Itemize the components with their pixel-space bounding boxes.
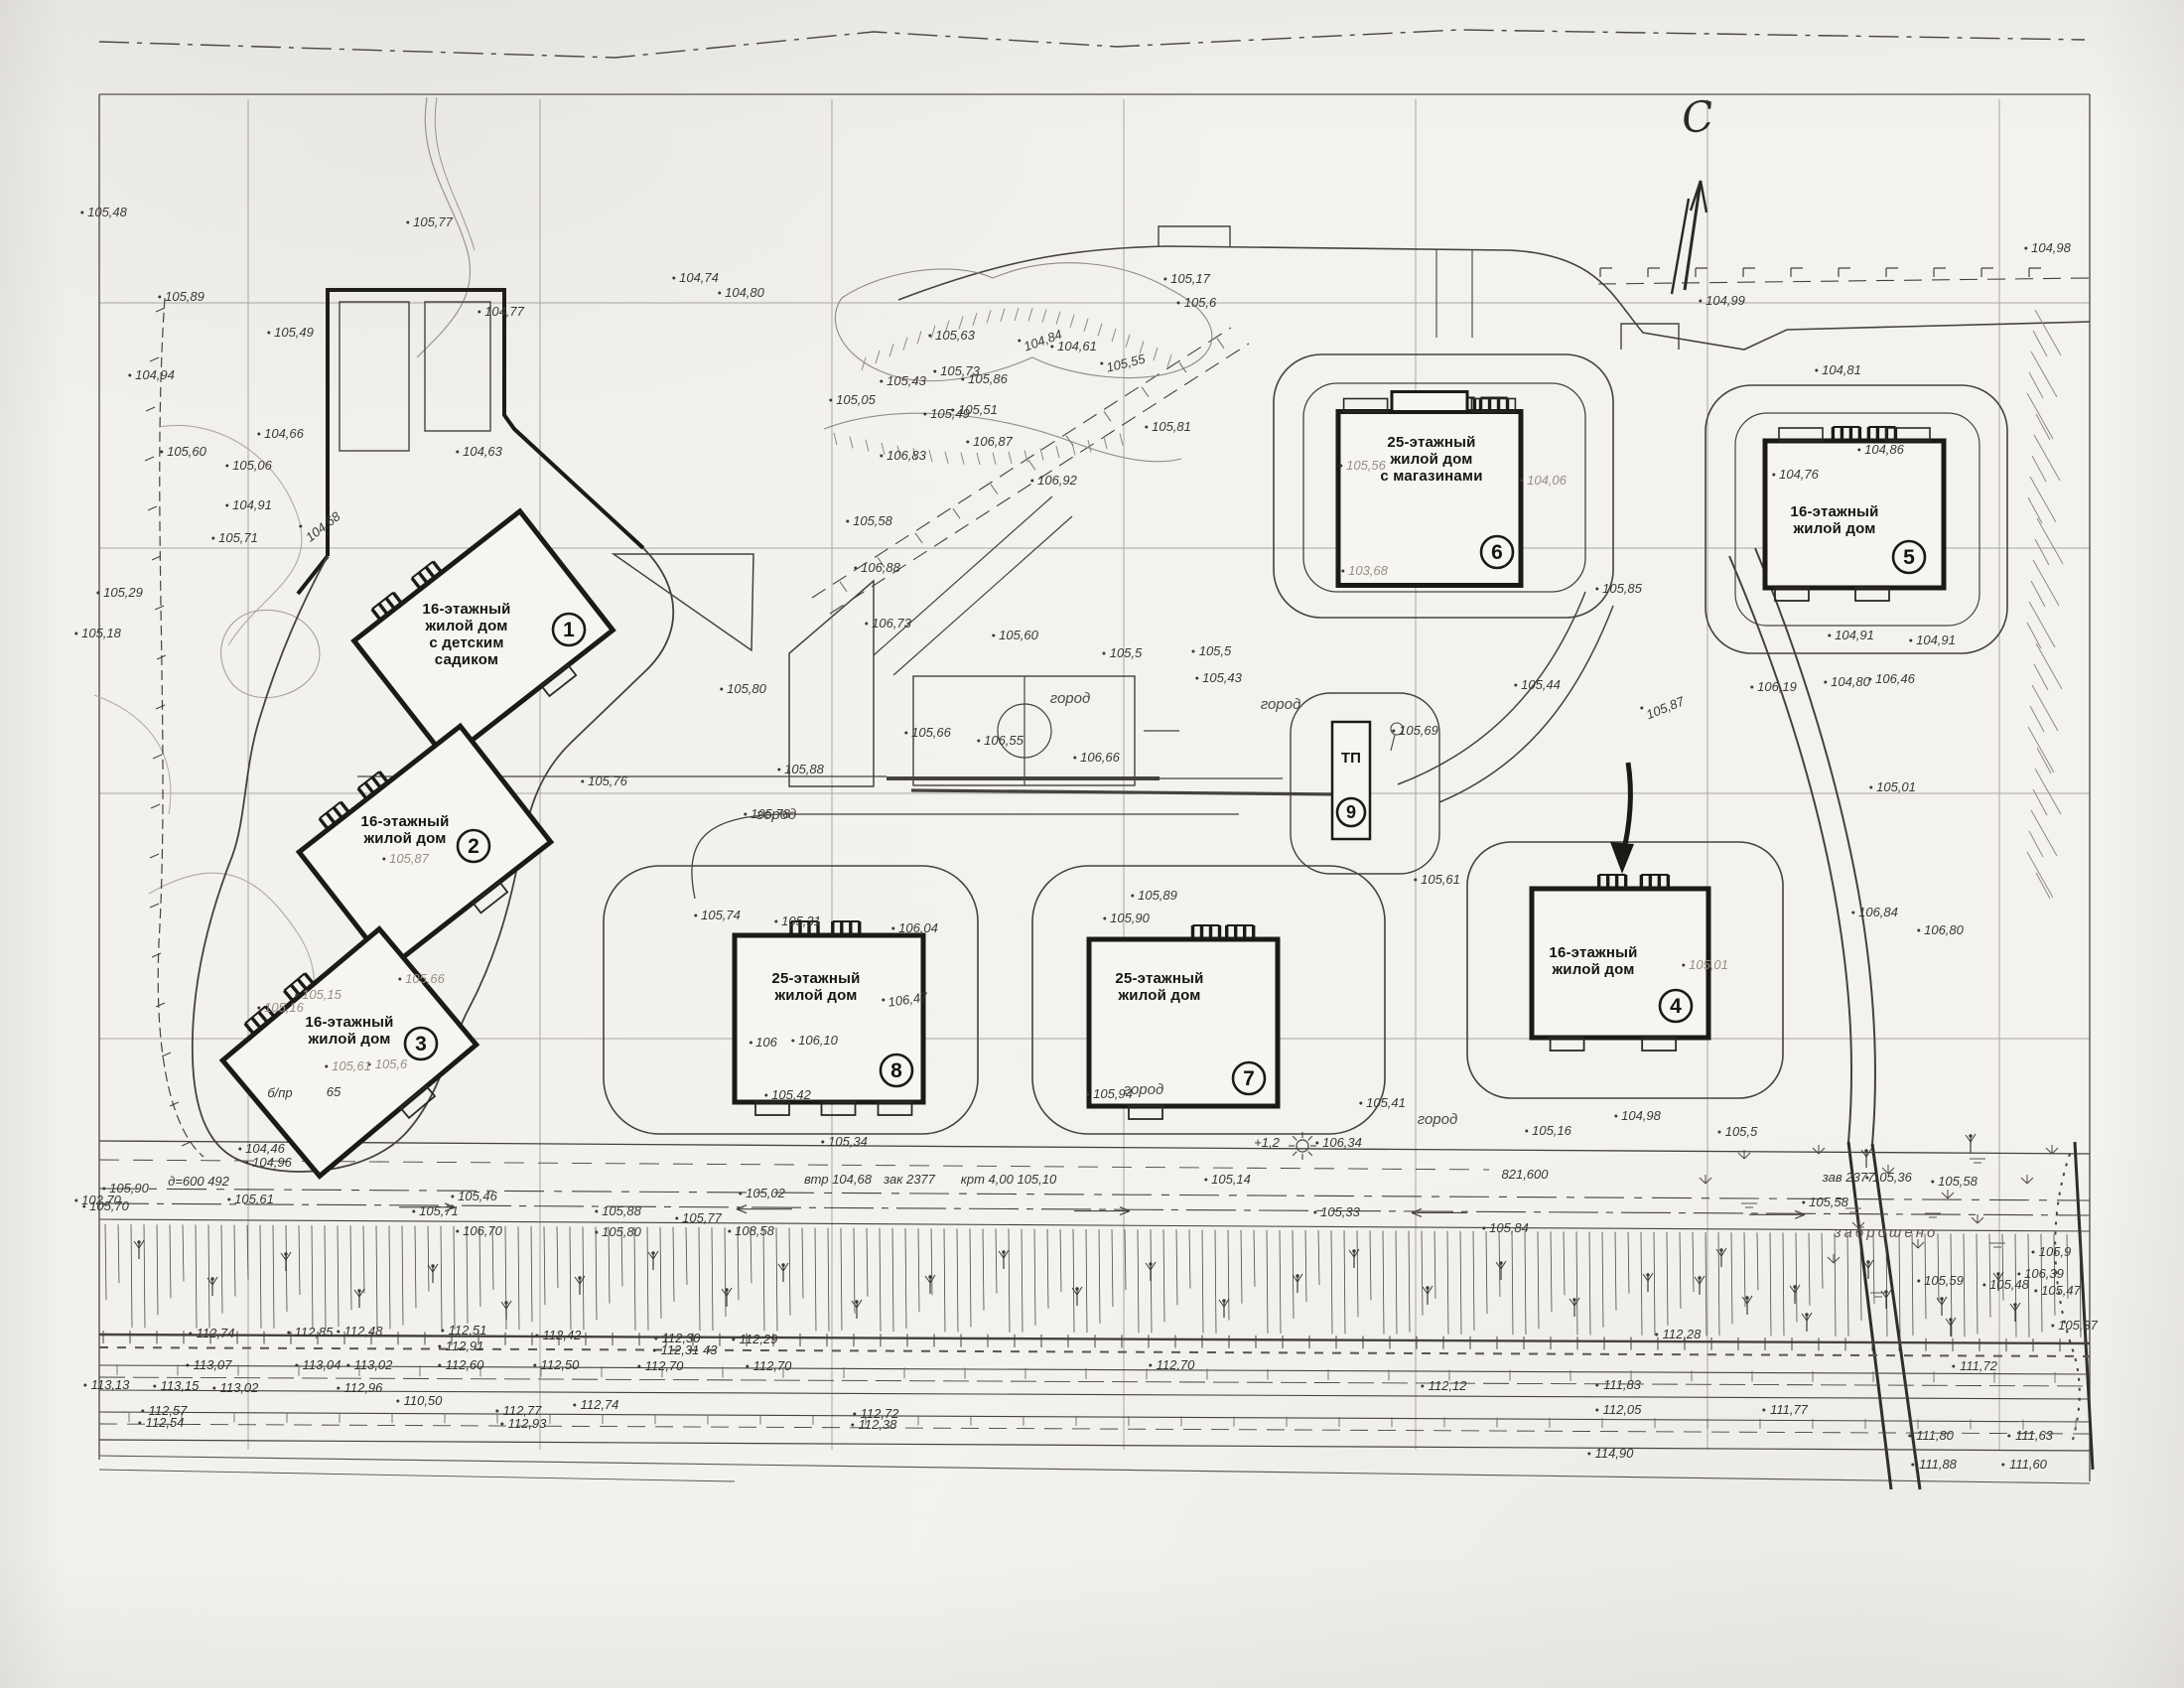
elevation-label: 105,46 [458, 1189, 498, 1203]
elevation-label: 105,61 [332, 1058, 371, 1073]
elevation-label: 104,63 [463, 444, 503, 459]
rail-elevation-label: 112,60 [446, 1357, 485, 1372]
elevation-label: 104,94 [135, 367, 175, 382]
rail-elevation-label: 112,38 [859, 1417, 898, 1432]
elevation-label: 106,83 [887, 448, 927, 463]
elevation-label: 105,55 [1105, 351, 1148, 374]
building-label-line: 16-этажный [360, 813, 449, 830]
elevation-label: 106,55 [984, 733, 1024, 748]
elevation-label: 105,6 [1184, 295, 1217, 310]
building-label-line: 16-этажный [1549, 944, 1637, 961]
elevation-label: 104,46 [245, 1141, 286, 1156]
elevation-label: 105,18 [81, 626, 122, 640]
elevation-label: 105,31 [781, 914, 821, 928]
elevation-label: 105,43 [887, 373, 927, 388]
building-label-line: с детским [429, 634, 503, 651]
rail-elevation-label: 112,70 [1157, 1357, 1196, 1372]
building-label-line: 25-этажный [771, 970, 860, 987]
elevation-label: 105,01 [1689, 957, 1728, 972]
elevation-label: 105,77 [413, 214, 454, 229]
building-label-line: 16-этажный [422, 601, 510, 618]
elevation-label: 106 [755, 1035, 777, 1050]
elevation-label: 105,80 [727, 681, 767, 696]
elevation-label: 105,48 [1989, 1277, 2030, 1292]
building-number: 7 [1243, 1067, 1255, 1090]
rail-elevation-label: 113,04 [303, 1357, 341, 1372]
building-number: 2 [468, 835, 479, 858]
elevation-label: 103,68 [1348, 563, 1389, 578]
elevation-label: 106,88 [861, 560, 901, 575]
elevation-label: 105,90 [1110, 911, 1151, 925]
elevation-label: 105,44 [1521, 677, 1561, 692]
building-label-line: жилой дом [1792, 520, 1875, 537]
elevation-label: 106,80 [1924, 922, 1965, 937]
building-label-line: 25-этажный [1115, 970, 1203, 987]
elevation-label: 104,98 [1621, 1108, 1662, 1123]
elevation-label: 105,02 [746, 1186, 786, 1200]
elevation-label: 105,5 [1725, 1124, 1758, 1139]
note-label: 65 [327, 1084, 341, 1099]
elevation-label: 105,58 [1938, 1174, 1979, 1189]
rail-elevation-label: 111,60 [2009, 1457, 2048, 1472]
elevation-label: 106,34 [1322, 1135, 1362, 1150]
elevation-label: 105,37 [2058, 1318, 2099, 1333]
rail-elevation-label: 112,31 43 [661, 1342, 719, 1357]
elevation-label: 105,61 [234, 1192, 274, 1206]
elevation-label: 105,06 [232, 458, 273, 473]
elevation-label: 105,71 [218, 530, 258, 545]
elevation-label: 106,04 [898, 920, 938, 935]
rail-elevation-label: 114,90 [1595, 1446, 1635, 1461]
elevation-label: 105,70 [89, 1198, 130, 1213]
note-label: втр 104,68 [804, 1172, 873, 1187]
elevation-label: 105,85 [1602, 581, 1643, 596]
elevation-label: 104,66 [264, 426, 305, 441]
rail-elevation-label: 112,96 [344, 1380, 384, 1395]
road-label: город [1124, 1081, 1164, 1098]
elevation-label: 104,91 [232, 497, 272, 512]
building-label-line: жилой дом [773, 987, 857, 1004]
note-label: зак 2377 [883, 1172, 936, 1187]
area-note-label: заброшено [1834, 1224, 1939, 1241]
building-label-line: садиком [435, 651, 498, 668]
rail-elevation-label: 112,42 [543, 1328, 583, 1342]
elevation-label: 106,46 [1875, 671, 1916, 686]
rail-elevation-label: 112,54 [146, 1415, 185, 1430]
elevation-label: 104,77 [484, 304, 525, 319]
note-label: 821,600 [1502, 1167, 1550, 1182]
rail-elevation-label: 111,77 [1770, 1402, 1809, 1417]
building-number: 8 [890, 1059, 902, 1082]
elevation-label: 105,14 [1211, 1172, 1251, 1187]
elevation-label: 105,15 [302, 987, 342, 1002]
elevation-label: 105,60 [999, 628, 1039, 642]
elevation-label: 104,74 [679, 270, 719, 285]
rail-elevation-label: 112,28 [1663, 1327, 1703, 1341]
elevation-label: 105,86 [968, 371, 1009, 386]
rail-elevation-label: 113,15 [161, 1378, 201, 1393]
road-label: город [1050, 690, 1091, 707]
elevation-label: 106,70 [463, 1223, 503, 1238]
elevation-label: 105,9 [2039, 1244, 2072, 1259]
elevation-label: 106,10 [798, 1033, 839, 1048]
rail-elevation-label: 112,70 [645, 1358, 685, 1373]
elevation-label: 108,58 [735, 1223, 775, 1238]
elevation-label: 105,59 [1924, 1273, 1964, 1288]
site-plan-drawing: 16-этажныйжилой домс детскимсадиком116-э… [0, 0, 2184, 1688]
building-number: 6 [1491, 541, 1503, 564]
elevation-label: 105,71 [419, 1203, 459, 1218]
note-label: д=600 492 [168, 1174, 230, 1189]
elevation-label: 106,39 [2024, 1266, 2064, 1281]
building-label-line: жилой дом [1551, 961, 1634, 978]
elevation-label: 105,58 [853, 513, 893, 528]
building-number: 1 [563, 619, 575, 641]
building-label-line: жилой дом [424, 618, 507, 634]
road-label: город [1261, 696, 1301, 713]
elevation-label: 104,96 [252, 1155, 293, 1170]
rail-elevation-label: 113,07 [194, 1357, 233, 1372]
elevation-label: 105,81 [1152, 419, 1191, 434]
elevation-label: 105,56 [1346, 458, 1387, 473]
rail-elevation-label: 112,70 [753, 1358, 793, 1373]
elevation-label: 105,17 [1170, 271, 1211, 286]
building-label-line: ТП [1341, 750, 1361, 767]
elevation-label: 105,87 [389, 851, 430, 866]
buildings-layer [213, 392, 1944, 1187]
elevation-label: 104,99 [1706, 293, 1745, 308]
rail-elevation-label: 112,74 [581, 1397, 619, 1412]
elevation-label: 104,61 [1057, 339, 1097, 353]
elevation-label: 105,36 [1872, 1170, 1913, 1185]
elevation-label: 104,81 [1822, 362, 1861, 377]
note-label: б/пр [267, 1085, 292, 1100]
elevation-label: 105,84 [1489, 1220, 1529, 1235]
elevation-label: 105,33 [1320, 1204, 1361, 1219]
elevation-label: 105,5 [1110, 645, 1143, 660]
rail-elevation-label: 112,50 [541, 1357, 581, 1372]
elevation-label: 104,91 [1835, 628, 1874, 642]
elevation-label: 105,58 [1809, 1195, 1849, 1209]
elevation-label: 105,74 [701, 908, 741, 922]
elevation-label: 105,69 [1399, 723, 1438, 738]
elevation-label: 105,34 [828, 1134, 868, 1149]
rail-elevation-label: 112,29 [740, 1332, 778, 1346]
building-label-line: с магазинами [1380, 468, 1482, 485]
elevation-label: 105,16 [1532, 1123, 1572, 1138]
elevation-label: 105,01 [1876, 779, 1916, 794]
elevation-label: 105,5 [1199, 643, 1232, 658]
rail-elevation-label: 111,80 [1916, 1428, 1955, 1443]
road-label: город [1418, 1111, 1458, 1128]
elevation-label: 105,48 [87, 205, 128, 219]
rail-elevation-label: 111,83 [1603, 1377, 1642, 1392]
elevation-label: 105,87 [1644, 693, 1687, 722]
elevation-label: 105,42 [771, 1087, 812, 1102]
building-number: 3 [415, 1033, 427, 1055]
elevation-label: 105,66 [405, 971, 446, 986]
elevation-label: 105,41 [1366, 1095, 1406, 1110]
note-label: зав 2377 [1822, 1170, 1875, 1185]
building-label-line: жилой дом [1117, 987, 1200, 1004]
elevation-label: 105,43 [1202, 670, 1243, 685]
elevation-label: 105,6 [375, 1056, 408, 1071]
elevation-label: 106,66 [1080, 750, 1121, 765]
rail-elevation-label: 112,93 [508, 1416, 548, 1431]
elevation-label: 104,91 [1916, 633, 1956, 647]
elevation-label: 105,47 [2041, 1283, 2082, 1298]
rail-elevation-label: 112,85 [295, 1325, 335, 1339]
building-label-line: 16-этажный [305, 1014, 393, 1031]
elevation-label: 105,66 [911, 725, 952, 740]
rail-elevation-label: 112,12 [1429, 1378, 1468, 1393]
rail-elevation-label: 112,74 [197, 1326, 235, 1340]
rail-elevation-label: 112,51 [449, 1323, 487, 1337]
building-label-line: жилой дом [307, 1031, 390, 1048]
elevation-label: 104,76 [1779, 467, 1820, 482]
elevation-label: 105,60 [167, 444, 207, 459]
elevation-label: 105,16 [264, 1000, 305, 1015]
note-label: +1,2 [1254, 1135, 1280, 1150]
elevation-label: 106,19 [1757, 679, 1797, 694]
building-label-line: 25-этажный [1387, 434, 1475, 451]
building-number: 4 [1670, 995, 1682, 1018]
elevation-label: 104,86 [1864, 442, 1905, 457]
elevation-label: 104,80 [1831, 674, 1871, 689]
elevation-label: 105,63 [935, 328, 976, 343]
building-number: 5 [1903, 546, 1915, 569]
elevation-label: 104,98 [2031, 240, 2072, 255]
elevation-label: 105,05 [836, 392, 877, 407]
building-label-line: жилой дом [1389, 451, 1472, 468]
elevation-label: 105,49 [274, 325, 314, 340]
elevation-label: 105,61 [1421, 872, 1460, 887]
elevation-label: 104,80 [725, 285, 765, 300]
elevation-label: 104,68 [303, 508, 343, 545]
elevation-label: 105,51 [958, 402, 998, 417]
elevation-label: 105,89 [165, 289, 205, 304]
north-arrow-label: С [1680, 88, 1744, 143]
elevation-label: 105,29 [103, 585, 143, 600]
rail-elevation-label: 113,02 [220, 1380, 260, 1395]
elevation-label: 105,89 [1138, 888, 1177, 903]
building-label-line: жилой дом [362, 830, 446, 847]
elevation-label: 105,88 [602, 1203, 642, 1218]
elevation-label: 106,84 [1858, 905, 1898, 919]
elevation-label: 106,73 [872, 616, 912, 631]
elevation-label: 105,80 [602, 1224, 642, 1239]
rail-elevation-label: 113,02 [354, 1357, 394, 1372]
rail-elevation-label: 112,48 [344, 1324, 384, 1338]
elevation-label: 105,76 [588, 774, 628, 788]
rail-elevation-label: 112,91 [446, 1338, 484, 1353]
elevation-label: 111,72 [1960, 1358, 1998, 1373]
elevation-label: 106,92 [1037, 473, 1078, 488]
building-number: 9 [1346, 802, 1356, 822]
elevation-label: 105,77 [682, 1210, 723, 1225]
elevation-label: 106,87 [973, 434, 1014, 449]
elevation-label: 105,88 [784, 762, 825, 776]
elevation-label: 105,90 [109, 1181, 150, 1196]
road-label: город [756, 806, 797, 823]
note-label: крт 4,00 105,10 [961, 1172, 1057, 1187]
rail-elevation-label: 111,88 [1919, 1457, 1958, 1472]
rail-elevation-label: 113,13 [91, 1377, 131, 1392]
scanned-site-plan: 16-этажныйжилой домс детскимсадиком116-э… [0, 0, 2184, 1688]
rail-elevation-label: 110,50 [404, 1393, 444, 1408]
building-label-line: 16-этажный [1790, 503, 1878, 520]
elevation-label: 104,06 [1527, 473, 1568, 488]
rail-elevation-label: 111,63 [2015, 1428, 2054, 1443]
rail-elevation-label: 112,05 [1603, 1402, 1643, 1417]
